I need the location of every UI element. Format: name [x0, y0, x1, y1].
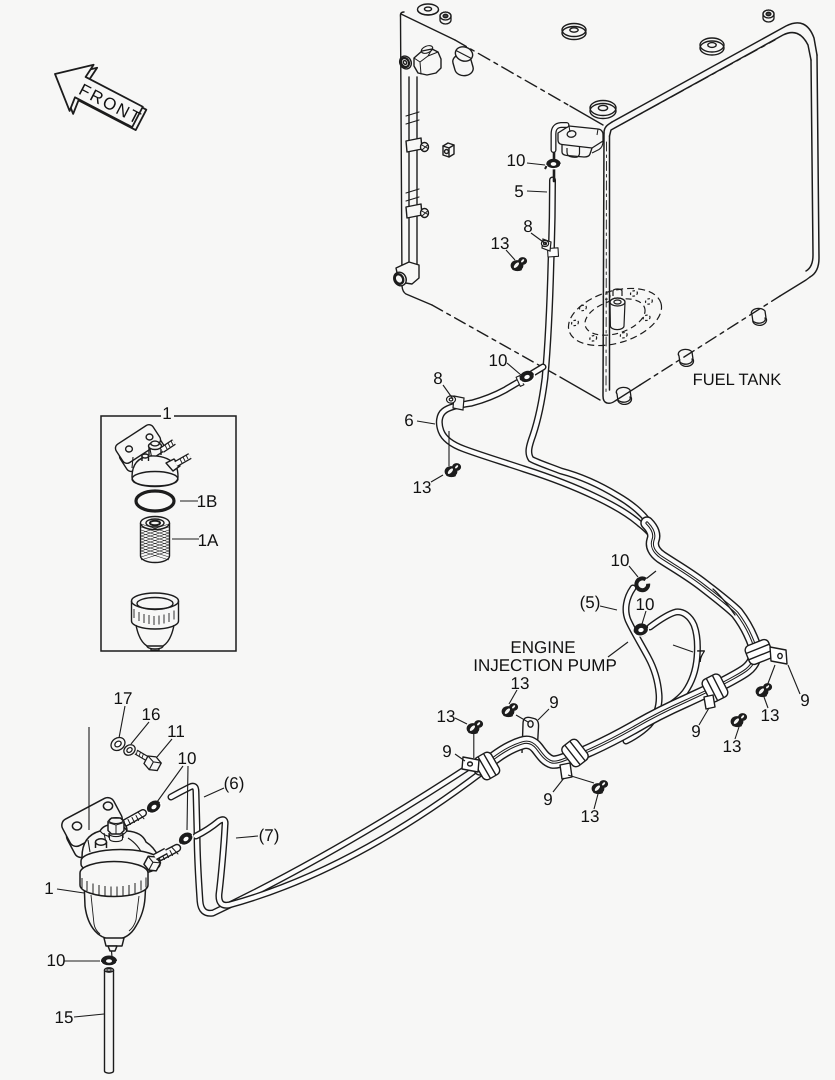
svg-text:9: 9 — [800, 691, 809, 710]
svg-text:10: 10 — [178, 749, 197, 768]
svg-text:1: 1 — [162, 404, 171, 423]
svg-text:10: 10 — [507, 151, 526, 170]
svg-text:9: 9 — [442, 742, 451, 761]
svg-text:ENGINE: ENGINE — [510, 638, 575, 657]
svg-text:10: 10 — [611, 551, 630, 570]
svg-text:13: 13 — [437, 707, 456, 726]
svg-text:1: 1 — [44, 879, 53, 898]
svg-text:(7): (7) — [259, 826, 280, 845]
svg-text:10: 10 — [489, 351, 508, 370]
svg-text:9: 9 — [543, 790, 552, 809]
svg-text:5: 5 — [514, 182, 523, 201]
svg-text:10: 10 — [636, 595, 655, 614]
svg-text:1B: 1B — [197, 492, 218, 511]
svg-text:13: 13 — [581, 807, 600, 826]
svg-text:(6): (6) — [224, 774, 245, 793]
svg-text:15: 15 — [55, 1008, 74, 1027]
svg-text:13: 13 — [761, 706, 780, 725]
svg-text:(5): (5) — [580, 593, 601, 612]
svg-text:8: 8 — [523, 217, 532, 236]
svg-text:FUEL TANK: FUEL TANK — [693, 371, 782, 389]
svg-text:16: 16 — [142, 705, 161, 724]
svg-text:9: 9 — [549, 693, 558, 712]
svg-text:7: 7 — [696, 647, 705, 666]
svg-text:13: 13 — [491, 234, 510, 253]
svg-text:11: 11 — [167, 722, 185, 741]
svg-text:10: 10 — [47, 951, 66, 970]
svg-text:1A: 1A — [198, 531, 219, 550]
svg-text:9: 9 — [691, 722, 700, 741]
svg-text:17: 17 — [114, 689, 133, 708]
svg-text:INJECTION PUMP: INJECTION PUMP — [473, 656, 617, 675]
svg-text:6: 6 — [404, 411, 413, 430]
svg-text:13: 13 — [723, 737, 742, 756]
svg-text:8: 8 — [433, 369, 442, 388]
svg-text:13: 13 — [511, 674, 530, 693]
svg-text:13: 13 — [413, 478, 432, 497]
